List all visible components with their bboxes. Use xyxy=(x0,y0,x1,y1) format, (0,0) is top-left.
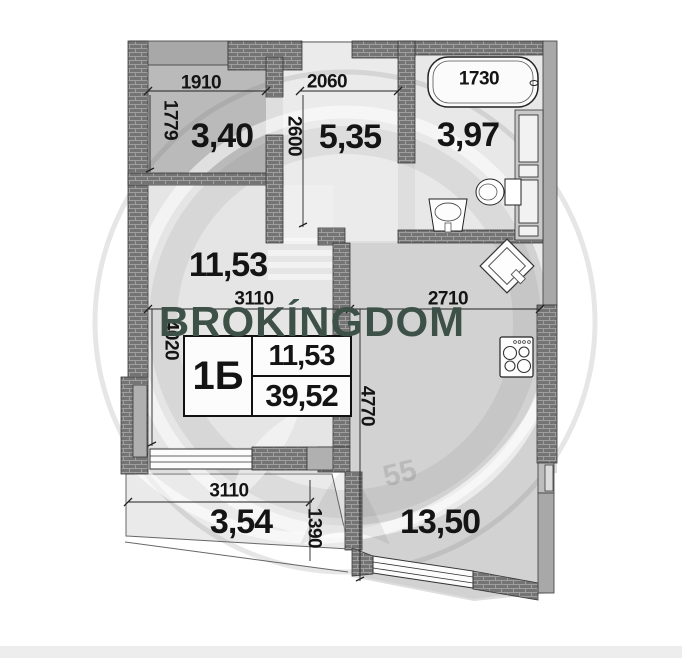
room-label-hallway: 5,35 xyxy=(319,120,381,154)
stove-icon xyxy=(500,337,533,377)
living-window xyxy=(150,449,252,469)
room-label-living: 11,53 xyxy=(189,248,267,282)
unit-info-box: 1Б 11,53 39,52 xyxy=(183,335,352,417)
wall-left-outer xyxy=(128,41,148,377)
dim-wardrobe-depth: 1779 xyxy=(161,100,180,140)
room-label-bathroom: 3,97 xyxy=(437,118,499,152)
wall-left-pillar xyxy=(133,385,147,457)
brand-watermark: BROKÍNGDOM xyxy=(159,298,465,346)
dim-kitchen-depth: 4770 xyxy=(358,386,377,426)
dim-balcony-depth: 1390 xyxy=(305,508,324,548)
unit-type-label: 1Б xyxy=(185,337,251,415)
unit-total-area: 39,52 xyxy=(253,375,350,415)
dim-hallway-width: 2060 xyxy=(307,73,347,92)
dim-wardrobe-width: 1910 xyxy=(181,74,221,93)
floor-plan-page: 1910 2060 1730 1779 2600 3110 2710 4020 … xyxy=(0,0,682,658)
wall-right-outer xyxy=(543,41,557,305)
emblem-number: 55 xyxy=(380,455,420,492)
toilet xyxy=(505,179,521,205)
dim-balcony-width: 3110 xyxy=(209,482,248,501)
balcony-door-stub xyxy=(307,447,333,470)
dim-hallway-depth: 2600 xyxy=(285,116,304,156)
room-label-wardrobe: 3,40 xyxy=(191,119,253,153)
wall-hall-bathroom xyxy=(398,41,415,163)
dim-bathtub-length: 1730 xyxy=(459,70,499,89)
room-label-kitchen: 13,50 xyxy=(400,505,480,539)
room-label-balcony: 3,54 xyxy=(210,505,272,539)
